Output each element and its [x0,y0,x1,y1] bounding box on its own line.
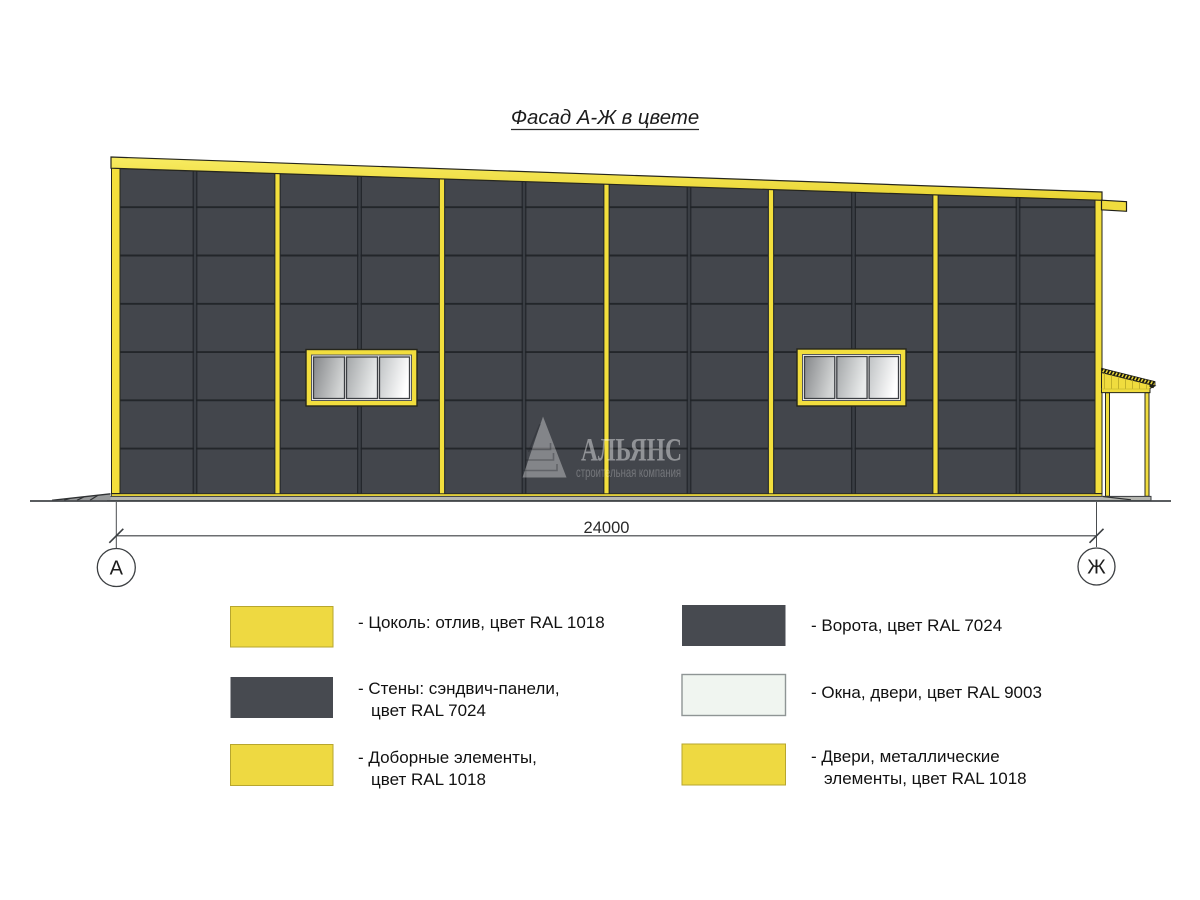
svg-text:элементы, цвет RAL 1018: элементы, цвет RAL 1018 [824,769,1027,788]
svg-text:- Стены: сэндвич-панели,: - Стены: сэндвич-панели, [358,679,560,698]
svg-text:- Окна, двери, цвет RAL 9003: - Окна, двери, цвет RAL 9003 [811,683,1042,702]
svg-text:Ж: Ж [1087,557,1106,579]
svg-text:- Двери, металлические: - Двери, металлические [811,747,1000,766]
svg-text:цвет RAL 1018: цвет RAL 1018 [371,770,486,789]
svg-text:- Цоколь: отлив, цвет RAL 1018: - Цоколь: отлив, цвет RAL 1018 [358,613,605,632]
svg-text:24000: 24000 [584,519,630,537]
svg-text:строительная компания: строительная компания [576,464,681,480]
svg-text:- Доборные элементы,: - Доборные элементы, [358,748,537,767]
svg-text:цвет RAL 7024: цвет RAL 7024 [371,701,486,720]
svg-text:- Ворота, цвет RAL 7024: - Ворота, цвет RAL 7024 [811,616,1002,635]
svg-text:Фасад А-Ж в цвете: Фасад А-Ж в цвете [511,107,699,129]
svg-text:А: А [110,558,124,580]
